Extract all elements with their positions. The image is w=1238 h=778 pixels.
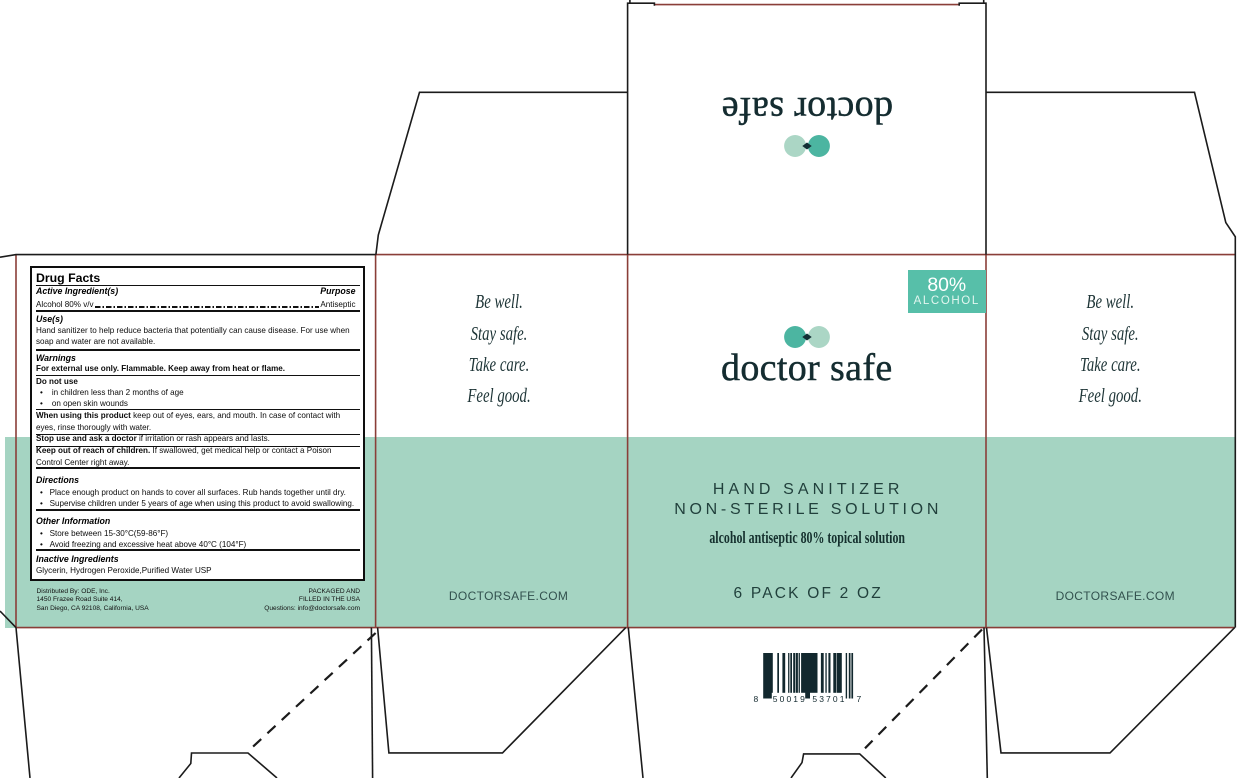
svg-text:50019: 50019 bbox=[773, 694, 807, 704]
svg-text:53701: 53701 bbox=[812, 694, 846, 704]
svg-text:7: 7 bbox=[857, 694, 862, 704]
svg-text:8: 8 bbox=[754, 694, 759, 704]
